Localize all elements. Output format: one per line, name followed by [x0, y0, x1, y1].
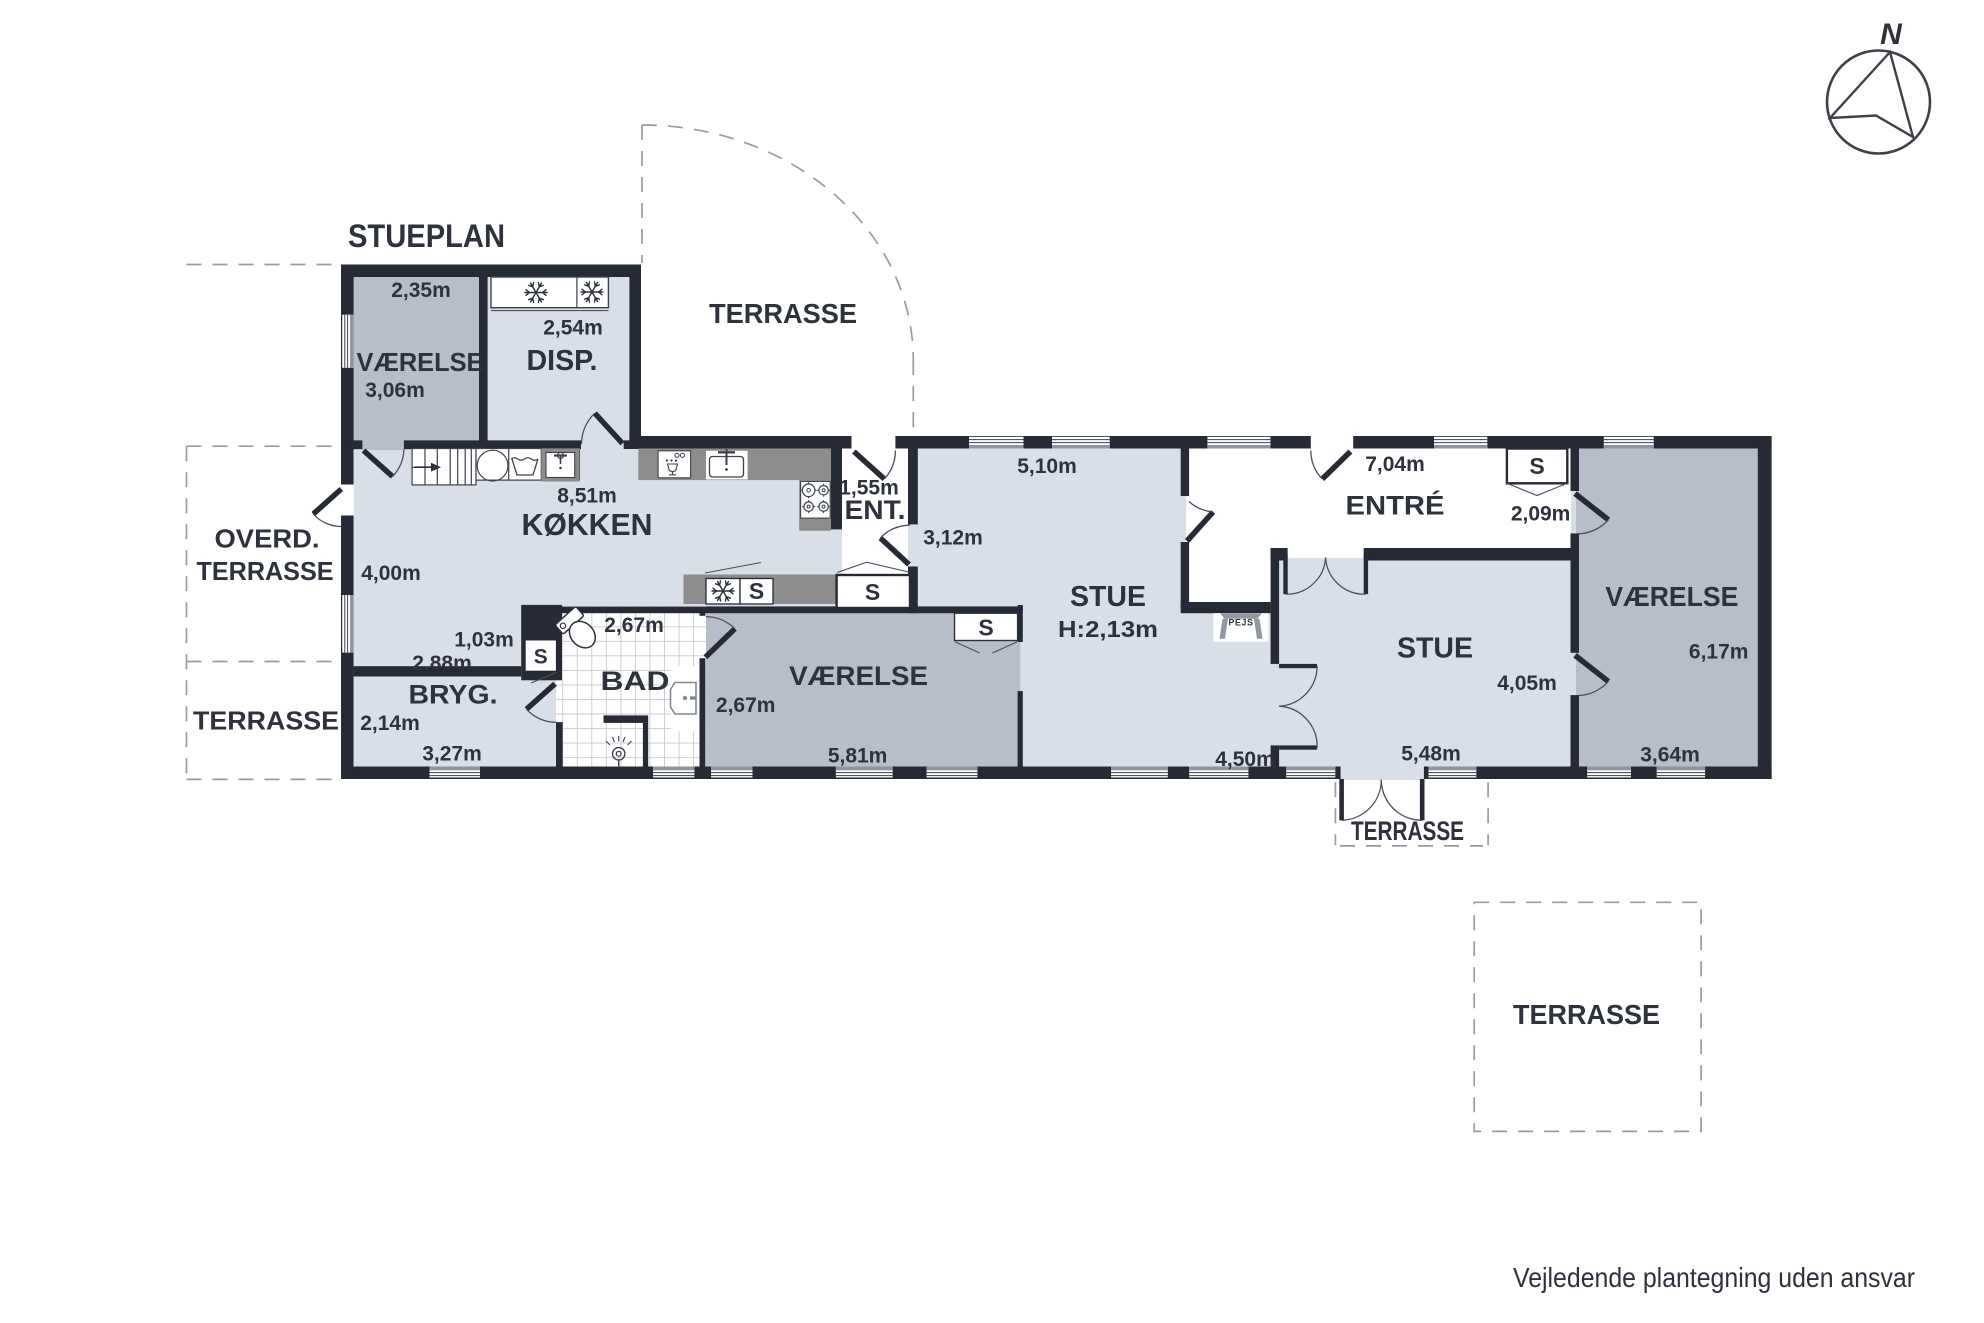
svg-text:VÆRELSE: VÆRELSE [357, 347, 484, 377]
svg-text:2,09m: 2,09m [1511, 503, 1571, 526]
svg-text:TERRASSE: TERRASSE [1351, 816, 1464, 846]
svg-text:4,05m: 4,05m [1497, 672, 1557, 695]
svg-text:STUE: STUE [1397, 633, 1473, 665]
svg-text:2,67m: 2,67m [604, 614, 664, 637]
svg-text:PEJS: PEJS [1229, 618, 1254, 628]
svg-text:5,81m: 5,81m [828, 745, 888, 768]
svg-text:2,88m: 2,88m [412, 652, 472, 675]
svg-text:STUEPLAN: STUEPLAN [348, 218, 505, 254]
svg-text:STUE: STUE [1070, 581, 1146, 613]
svg-text:DISP.: DISP. [527, 345, 598, 377]
svg-text:1,03m: 1,03m [454, 629, 514, 652]
svg-text:3,12m: 3,12m [923, 527, 983, 550]
svg-text:4,50m: 4,50m [1215, 748, 1275, 771]
svg-text:VÆRELSE: VÆRELSE [1605, 581, 1738, 612]
svg-text:S: S [978, 615, 993, 641]
svg-text:BAD: BAD [601, 666, 670, 696]
svg-text:3,27m: 3,27m [422, 743, 482, 766]
svg-text:Vejledende plantegning uden an: Vejledende plantegning uden ansvar [1513, 1262, 1915, 1293]
svg-text:TERRASSE: TERRASSE [193, 706, 339, 736]
svg-text:S: S [865, 579, 880, 605]
svg-text:ENTRÉ: ENTRÉ [1346, 490, 1445, 521]
svg-text:N: N [1880, 18, 1903, 51]
svg-text:VÆRELSE: VÆRELSE [789, 661, 928, 691]
svg-text:TERRASSE: TERRASSE [709, 298, 857, 329]
svg-text:6,17m: 6,17m [1689, 641, 1749, 664]
svg-text:S: S [749, 578, 764, 604]
svg-text:2,67m: 2,67m [716, 694, 776, 717]
svg-text:4,00m: 4,00m [361, 562, 421, 585]
svg-text:5,48m: 5,48m [1401, 743, 1461, 766]
svg-text:BRYG.: BRYG. [409, 680, 498, 710]
svg-text:KØKKEN: KØKKEN [522, 507, 653, 542]
svg-text:S: S [534, 646, 548, 669]
svg-text:H:2,13m: H:2,13m [1058, 616, 1158, 642]
svg-text:5,10m: 5,10m [1017, 455, 1077, 478]
svg-text:2,14m: 2,14m [360, 712, 420, 735]
svg-text:TERRASSE: TERRASSE [197, 556, 334, 586]
svg-text:7,04m: 7,04m [1365, 453, 1425, 476]
svg-text:S: S [1529, 453, 1544, 479]
svg-text:2,35m: 2,35m [391, 279, 451, 302]
svg-text:OVERD.: OVERD. [215, 524, 320, 554]
svg-text:3,64m: 3,64m [1640, 744, 1700, 767]
svg-text:ENT.: ENT. [845, 495, 906, 525]
svg-text:2,54m: 2,54m [543, 317, 603, 340]
svg-text:3,06m: 3,06m [365, 379, 425, 402]
svg-text:TERRASSE: TERRASSE [1513, 999, 1660, 1030]
svg-text:8,51m: 8,51m [557, 485, 617, 508]
